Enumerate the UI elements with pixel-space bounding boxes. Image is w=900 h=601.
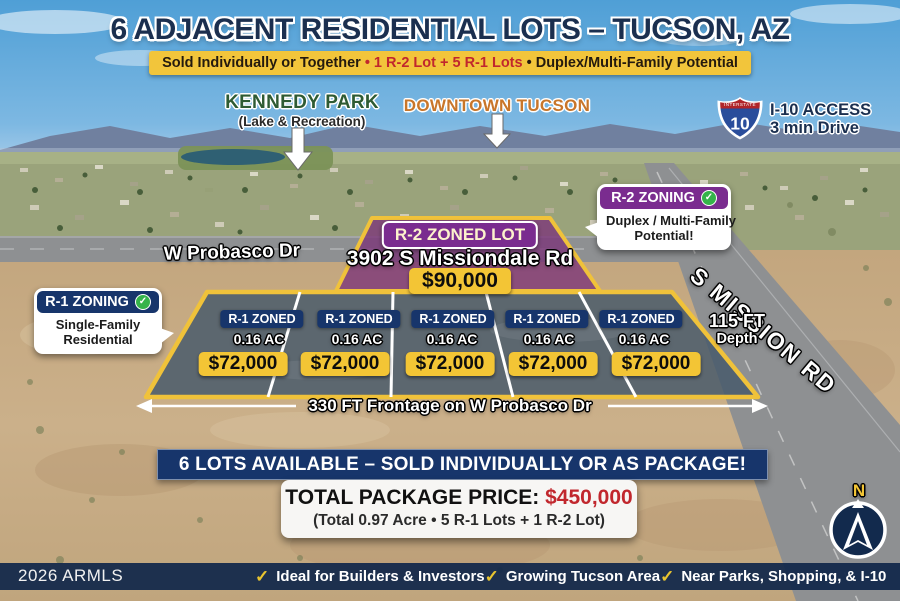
compass-north-label: N — [849, 481, 869, 501]
probasco-road-label: W Probasco Dr — [164, 240, 301, 266]
lot-3-area: 0.16 AC — [427, 331, 478, 347]
frontage-label: 330 FT Frontage on W Probasco Dr — [0, 396, 900, 416]
lot-4-area: 0.16 AC — [524, 331, 575, 347]
subtitle-part3: Duplex/Multi-Family Potential — [536, 55, 738, 71]
footer-item-2: ✓ Growing Tucson Area — [485, 567, 660, 587]
callout-tail — [160, 328, 174, 344]
lot-5-zone: R-1 ZONED — [599, 310, 682, 328]
downtown-tucson-label: DOWNTOWN TUCSON — [404, 96, 590, 116]
svg-text:10: 10 — [730, 114, 750, 134]
footer-bar: ✓ Ideal for Builders & Investors ✓ Growi… — [0, 563, 900, 590]
r2-zoning-header: R-2 ZONING ✓ — [600, 187, 728, 209]
lot-4-price: $72,000 — [509, 352, 598, 376]
subtitle-part2: 1 R-2 Lot + 5 R-1 Lots — [374, 55, 523, 71]
kennedy-park-lake — [181, 149, 285, 165]
lot-2-price: $72,000 — [301, 352, 390, 376]
r2-lot-price: $90,000 — [409, 268, 511, 294]
page-title: 6 ADJACENT RESIDENTIAL LOTS – TUCSON, AZ — [0, 13, 900, 47]
footer-item-3: ✓ Near Parks, Shopping, & I-10 — [660, 567, 886, 587]
lot-5-price: $72,000 — [612, 352, 701, 376]
depth-label: 115 FT Depth — [709, 312, 765, 348]
subtitle-banner: Sold Individually or Together • 1 R-2 Lo… — [149, 51, 751, 75]
check-icon: ✓ — [660, 567, 674, 587]
lot-2-zone: R-1 ZONED — [317, 310, 400, 328]
r2-lot-badge: R-2 ZONED LOT — [382, 221, 538, 249]
i10-access-label: I-10 ACCESS 3 min Drive — [770, 101, 871, 138]
lot-1-zone: R-1 ZONED — [220, 310, 303, 328]
lot-1-area: 0.16 AC — [234, 331, 285, 347]
r1-zoning-header: R-1 ZONING ✓ — [37, 291, 159, 313]
r2-zoning-callout: R-2 ZONING ✓ Duplex / Multi-Family Poten… — [597, 184, 731, 250]
lot-3-zone: R-1 ZONED — [411, 310, 494, 328]
check-icon: ✓ — [135, 294, 151, 310]
lot-3-price: $72,000 — [406, 352, 495, 376]
lot-5-area: 0.16 AC — [619, 331, 670, 347]
availability-banner: 6 LOTS AVAILABLE – SOLD INDIVIDUALLY OR … — [157, 449, 768, 480]
package-price-box: TOTAL PACKAGE PRICE: $450,000 (Total 0.9… — [281, 480, 637, 538]
subtitle-part1: Sold Individually or Together — [162, 55, 361, 71]
kennedy-park-label: KENNEDY PARK (Lake & Recreation) — [222, 92, 382, 129]
callout-tail — [585, 222, 599, 238]
check-icon: ✓ — [255, 567, 269, 587]
r1-zoning-callout: R-1 ZONING ✓ Single-Family Residential — [34, 288, 162, 354]
package-price-value: $450,000 — [545, 486, 633, 509]
package-details: (Total 0.97 Acre • 5 R-1 Lots + 1 R-2 Lo… — [285, 512, 633, 530]
subtitle-bullet2: • — [527, 55, 532, 71]
lot-1-price: $72,000 — [199, 352, 288, 376]
check-icon: ✓ — [701, 190, 717, 206]
lot-4-zone: R-1 ZONED — [505, 310, 588, 328]
subtitle-bullet1: • — [365, 55, 370, 71]
listing-flyer: INTERSTATE 10 6 ADJACENT RESIDENTIAL LOT… — [0, 0, 900, 601]
armls-watermark: 2026 ARMLS — [18, 566, 123, 586]
package-price-label: TOTAL PACKAGE PRICE: — [285, 486, 539, 509]
footer-item-1: ✓ Ideal for Builders & Investors — [255, 567, 485, 587]
check-icon: ✓ — [485, 567, 499, 587]
lot-2-area: 0.16 AC — [332, 331, 383, 347]
